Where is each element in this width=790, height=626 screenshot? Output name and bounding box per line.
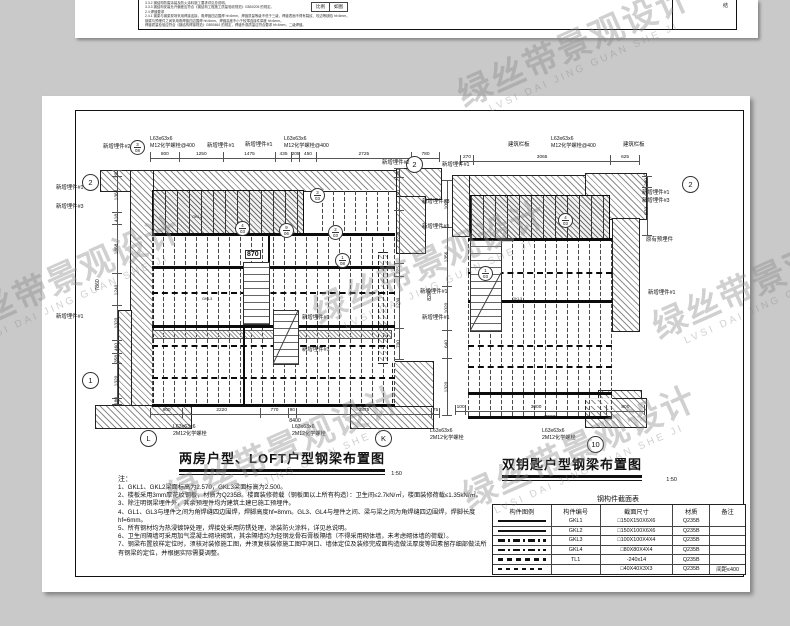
detail-bubble: 203	[328, 225, 343, 240]
dimension-value: 1356	[442, 227, 452, 285]
dimension-value: 275	[394, 263, 404, 276]
grid-bubble-K: K	[375, 430, 392, 447]
dimension-value: 800	[150, 152, 179, 162]
grid-bubble-1: 1	[82, 372, 99, 389]
dimension-value: 700	[394, 328, 404, 360]
section-table: 构件图例构件编号截面尺寸材质备注 GKL1□150X150X6X6Q235BGK…	[492, 504, 746, 575]
dimension-value: 205	[291, 152, 299, 162]
dimension-string-bottom: 900222077090387575	[150, 408, 440, 418]
material-cell: Q235B	[672, 565, 709, 574]
remark-cell	[709, 546, 745, 555]
grid-bubble-L: L	[140, 430, 157, 447]
wall-hatch	[130, 170, 154, 427]
callout-angle-bolt: L63x63x62M12化学螺栓	[430, 428, 464, 441]
dimension-value: 900	[150, 408, 182, 418]
table-row: GKL4□80X80X4X4Q235B	[493, 545, 745, 555]
dimension-value: 100	[455, 405, 465, 415]
table-row: GKL2□150X100X6X6Q235B	[493, 526, 745, 536]
table-header-cell: 构件图例	[493, 505, 551, 517]
steel-beam-zone	[470, 195, 610, 240]
dimension-value: 450	[299, 152, 316, 162]
note-line: 3、除注明钢梁埋件外，其余预埋件均为建筑土建已施工预埋件。	[118, 500, 490, 508]
material-cell: Q235B	[672, 527, 709, 536]
section-size-cell: -240x14	[600, 555, 673, 564]
dimension-string-left: 1090135610206401320	[442, 180, 452, 416]
dimension-value: 3875	[296, 408, 431, 418]
remark-cell: 间距≤400	[709, 565, 745, 574]
dimension-value: 418	[112, 212, 122, 224]
plan-scale-left: 1:50	[162, 471, 402, 477]
callout-new-embed-1: 新增埋件#1	[422, 313, 450, 321]
dimension-value: 3065	[473, 155, 610, 165]
callout-new-embed-1: 新增埋件#1	[302, 313, 330, 321]
dimension-string-right: 200970	[642, 176, 652, 236]
detail-bubble: 403	[235, 221, 250, 236]
table-row: TL1-240x14Q235B	[493, 554, 745, 564]
member-number-cell: GKL1	[551, 517, 600, 526]
callout-rail: 建筑栏板	[508, 140, 530, 148]
section-size-cell: □150X100X6X6	[600, 527, 673, 536]
dimension-total: 3900	[455, 415, 645, 421]
callout-new-embed-1: 新增埋件#1	[442, 160, 470, 168]
dimension-value: 200	[642, 176, 652, 187]
beam-tag: GKL3	[512, 296, 522, 301]
callout-new-embed-1: 新增埋件#1	[207, 141, 235, 149]
steel-beam	[152, 233, 395, 236]
callout-new-embed-1: 新增埋件#1	[302, 345, 330, 353]
legend-cell	[493, 565, 551, 574]
callout-new-embed-1: 新增埋件#1	[642, 188, 670, 196]
legend-line-solid	[498, 530, 547, 532]
notes-label: 注：	[118, 474, 132, 484]
callout-angle-bolt: L63x63x6M12化学螺栓@400	[150, 136, 195, 149]
callout-rail: 建筑栏板	[623, 140, 645, 148]
legend-line-dash2	[498, 568, 547, 570]
wall-hatch	[452, 175, 470, 237]
dimension-string-top: 2703065625	[460, 155, 640, 165]
dimension-value: 800	[606, 405, 645, 415]
dimension-value: 3000	[465, 405, 606, 415]
member-number-cell: GKL4	[551, 546, 600, 555]
table-header-cell: 截面尺寸	[600, 505, 673, 517]
steel-beam	[468, 392, 612, 395]
member-number-cell: TL1	[551, 555, 600, 564]
dimension-value: 1229	[394, 210, 404, 263]
legend-cell	[493, 555, 551, 564]
dimension-value: 1230	[394, 276, 404, 329]
table-header-cell: 构件编号	[551, 505, 600, 517]
top-sheet: 3.3.2 钢结构防腐涂装及防火涂料施工要求详见总说明。3.3.3 钢结构安装允…	[75, 0, 758, 38]
note-line: 4、GL1、GL3与埋件之间为角焊缝四边围焊，焊脚高度hf=8mm。GL3、GL…	[118, 509, 490, 525]
callout-new-embed-1: 新增埋件#1	[56, 312, 84, 320]
callout-angle-bolt: L63x63x62M12化学螺栓	[542, 428, 576, 441]
steel-beam-dashed	[468, 366, 612, 368]
note-line: 5、所有钢材均为热浸镀锌处理，焊接处采用防锈处理，涂装防火涂料，详见总说明。	[118, 525, 490, 533]
table-header-cell: 备注	[709, 505, 745, 517]
table-body: GKL1□150X150X6X6Q235BGKL2□150X100X6X6Q23…	[493, 517, 745, 574]
callout-angle-bolt: L63x63x6M12化学螺栓@400	[284, 136, 329, 149]
steel-beam	[152, 404, 395, 407]
member-number-cell: GKL2	[551, 527, 600, 536]
dimension-value: 1475	[223, 152, 275, 162]
plan-title-right: 双钥匙户型钢梁布置图	[467, 454, 677, 478]
top-sheet-corner-mark: 结	[723, 2, 728, 9]
detail-bubble: 103	[478, 266, 493, 281]
section-size-cell: □80X80X4X4	[600, 546, 673, 555]
dimension-value: 358	[112, 353, 122, 363]
plan-title-left: 两房户型、LOFT户型钢梁布置图	[162, 448, 402, 472]
table-row: GKL3□100X100X4X4Q235B	[493, 535, 745, 545]
remark-cell	[709, 517, 745, 526]
dimension-value: 75	[431, 408, 440, 418]
note-line: 7、钢梁布置放样定位时，须核对装修施工图，并须复核装修施工图中洞口、墙体定位及装…	[118, 541, 490, 557]
detail-bubble: 108	[335, 253, 350, 268]
dimension-value: 435	[275, 152, 291, 162]
dimension-value: 1368	[112, 176, 122, 212]
dimension-value: 1868	[112, 224, 122, 273]
slab-strip	[152, 330, 392, 339]
legend-line-solid	[498, 520, 547, 522]
dimension-value: 90	[288, 408, 296, 418]
detail-bubble: 906	[279, 223, 294, 238]
top-sheet-scale-box: 比例 如图	[311, 2, 348, 12]
member-number-cell	[551, 565, 600, 574]
note-line: 1、GKL1、GKL2梁面标高为2.570，GKL3梁面标高为2.500。	[118, 484, 490, 492]
dimension-string-bottom: 1003000800	[455, 405, 645, 415]
dimension-value: 640	[442, 330, 452, 358]
remark-cell	[709, 536, 745, 545]
beam-tag: GKL2	[192, 214, 202, 219]
table-row: GKL1□150X150X6X6Q235B	[493, 517, 745, 526]
material-cell: Q235B	[672, 517, 709, 526]
steel-beam	[152, 266, 395, 269]
dimension-value: 750	[394, 177, 404, 210]
detail-bubble: 303	[310, 188, 325, 203]
remark-cell	[709, 527, 745, 536]
drawing-sheet: 870 800125014754352054502725780 90022207…	[42, 96, 750, 592]
grid-bubble-2: 2	[82, 174, 99, 191]
table-header-cell: 材质	[672, 505, 709, 517]
section-size-cell: □100X100X4X4	[600, 536, 673, 545]
plan-scale-right: 1:50	[467, 477, 677, 483]
notes-list: 1、GKL1、GKL2梁面标高为2.570，GKL3梁面标高为2.500。2、楼…	[118, 484, 490, 558]
legend-line-dashdot	[498, 549, 547, 551]
dimension-value: 1320	[112, 305, 122, 340]
legend-line-dashdot	[498, 539, 547, 541]
callout-new-embed-3: 新增埋件#3	[56, 202, 84, 210]
wall-hatch	[612, 218, 640, 332]
legend-cell	[493, 527, 551, 536]
dimension-value: 1250	[179, 152, 223, 162]
steel-beam-dashed	[468, 345, 612, 347]
callout-new-embed-1: 新增埋件#1	[56, 183, 84, 191]
wall-hatch	[455, 175, 592, 197]
callout-new-embed-1: 新增埋件#1	[245, 140, 273, 148]
dimension-value: 770	[260, 408, 288, 418]
callout-new-embed-2: 新增埋件#2	[382, 158, 410, 166]
callout-angle-bolt: L63x63x62M12化学螺栓	[292, 424, 326, 437]
legend-line-dash	[498, 558, 547, 560]
dimension-value: 1320	[442, 358, 452, 416]
callout-new-embed-1: 新增埋件#1	[422, 222, 450, 230]
note-line: 焊缝质量检验应符合《钢结构焊接规范》GB50661 的规定，焊缝外观质量应符合要…	[145, 23, 455, 27]
dimension-string-right: 20075012292751230700	[394, 168, 404, 360]
beam-tag: GKL3	[202, 296, 212, 301]
stair-width-dimension: 870	[245, 250, 261, 259]
legend-cell	[493, 517, 551, 526]
section-size-cell: □40X40X3X3	[600, 565, 673, 574]
scale-label: 比例	[312, 3, 329, 11]
dimension-value: 460	[112, 340, 122, 353]
dimension-value: 2220	[182, 408, 260, 418]
remark-cell	[709, 555, 745, 564]
dimension-value: 180	[112, 398, 122, 405]
steel-beam-dashed	[152, 377, 395, 379]
scale-value: 如图	[329, 3, 347, 11]
dimension-value: 1320	[112, 363, 122, 398]
grid-bubble-2: 2	[682, 176, 699, 193]
member-number-cell: GKL3	[551, 536, 600, 545]
dimension-value: 625	[610, 155, 640, 165]
material-cell: Q235B	[672, 536, 709, 545]
wall-hatch	[392, 361, 434, 407]
callout-angle-bolt: L63x63x6M12化学螺栓@400	[551, 136, 596, 149]
steel-beam-dashed	[152, 292, 395, 294]
callout-new-embed-3: 新增埋件#3	[422, 197, 450, 205]
material-cell: Q235B	[672, 555, 709, 564]
dimension-value: 200	[394, 168, 404, 177]
table-row: □40X40X3X3Q235B间距≤400	[493, 564, 745, 574]
callout-new-embed-2: 新增埋件#2	[103, 142, 131, 150]
callout-orig-embed: 原有预埋件	[646, 235, 673, 243]
callout-angle-bolt: L63x63x62M12化学螺栓	[173, 424, 207, 437]
callout-new-embed-1: 新增埋件#1	[648, 288, 676, 296]
grid-bubble-10: 10	[587, 436, 604, 453]
material-cell: Q235B	[672, 546, 709, 555]
dimension-value: 1240	[112, 273, 122, 306]
section-size-cell: □150X150X6X6	[600, 517, 673, 526]
table-header-row: 构件图例构件编号截面尺寸材质备注	[493, 505, 745, 517]
legend-cell	[493, 546, 551, 555]
top-sheet-divider	[672, 0, 673, 29]
detail-bubble: 403	[558, 213, 573, 228]
callout-new-embed-3: 新增埋件#3	[642, 196, 670, 204]
page: { "watermark":{"cn":"绿丝带景观设计","en":"LVSI…	[0, 0, 790, 626]
dimension-total: 7860	[95, 279, 101, 291]
detail-bubble: 308	[130, 140, 145, 155]
top-sheet-notes: 3.3.2 钢结构防腐涂装及防火涂料施工要求详见总说明。3.3.3 钢结构安装允…	[145, 1, 455, 28]
callout-new-embed-1: 新增埋件#1	[420, 287, 448, 295]
stair	[243, 262, 270, 325]
table-title: 钢构件截面表	[492, 494, 744, 504]
legend-cell	[493, 536, 551, 545]
dimension-string-left: 20013684181868124013204603581320180	[112, 170, 122, 405]
